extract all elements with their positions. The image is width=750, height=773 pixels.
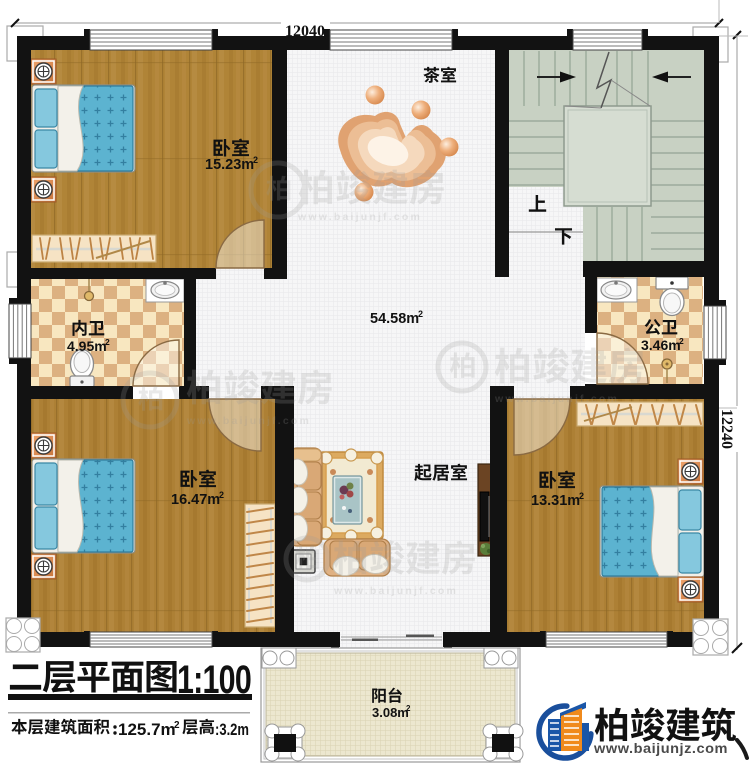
svg-text:2: 2 <box>253 155 258 165</box>
svg-text:12040: 12040 <box>285 23 325 40</box>
svg-text:4.95m: 4.95m <box>67 338 107 354</box>
svg-text:2: 2 <box>219 490 224 500</box>
svg-text:2: 2 <box>105 337 110 347</box>
svg-text:125.7m: 125.7m <box>118 720 176 739</box>
svg-text:2: 2 <box>406 704 411 713</box>
svg-text:54.58m: 54.58m <box>370 311 419 327</box>
svg-text:12240: 12240 <box>718 409 735 449</box>
svg-text:2: 2 <box>679 336 684 346</box>
svg-text:2: 2 <box>579 491 584 501</box>
svg-text:2: 2 <box>418 309 423 319</box>
svg-text:13.31m: 13.31m <box>531 493 580 509</box>
svg-text::3.2m: :3.2m <box>215 720 249 739</box>
svg-text:www.baijunjf.com: www.baijunjf.com <box>186 415 311 427</box>
svg-text:2: 2 <box>174 720 180 731</box>
svg-text:15.23m: 15.23m <box>205 157 254 173</box>
svg-text:www.baijunjf.com: www.baijunjf.com <box>297 211 422 223</box>
svg-text:www.baijunjf.com: www.baijunjf.com <box>333 585 458 597</box>
svg-text:www.baijunjz.com: www.baijunjz.com <box>593 740 728 756</box>
svg-text:www.baijunjf.com: www.baijunjf.com <box>494 393 619 405</box>
svg-text:3.08m: 3.08m <box>372 705 409 720</box>
svg-text:16.47m: 16.47m <box>171 492 220 508</box>
svg-text:3.46m: 3.46m <box>641 337 681 353</box>
